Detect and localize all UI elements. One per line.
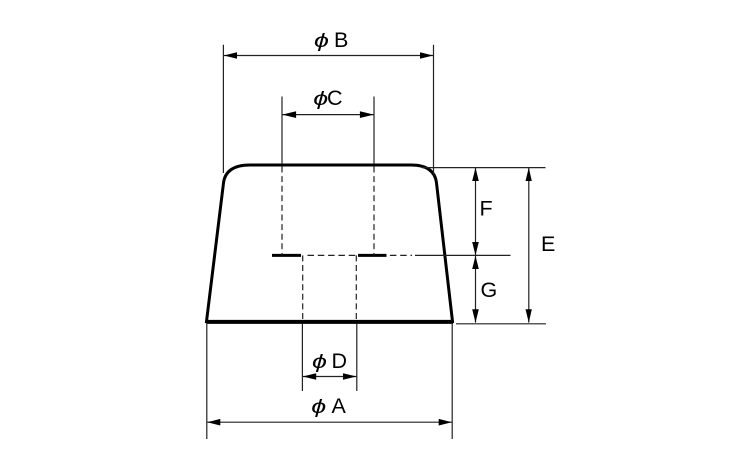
svg-text:F: F: [480, 197, 493, 221]
svg-text:E: E: [541, 232, 555, 256]
svg-text:C: C: [327, 86, 343, 110]
svg-text:B: B: [334, 28, 348, 52]
svg-text:A: A: [332, 394, 347, 418]
svg-text:ϕ: ϕ: [313, 88, 328, 109]
svg-text:ϕ: ϕ: [314, 30, 329, 51]
svg-text:ϕ: ϕ: [311, 396, 326, 417]
svg-text:ϕ: ϕ: [312, 351, 327, 372]
svg-text:D: D: [332, 349, 348, 373]
svg-text:G: G: [481, 278, 498, 302]
